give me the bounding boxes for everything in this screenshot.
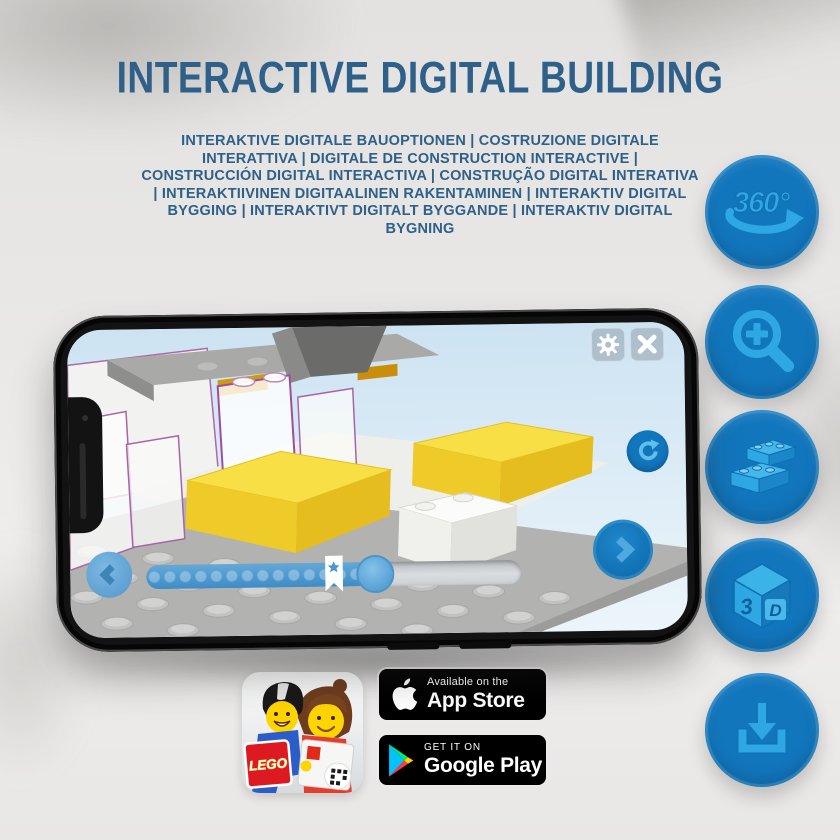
app-store-tagline: Available on the (427, 677, 525, 689)
3d-view-icon: 3 D (717, 550, 807, 640)
lego-app-icon[interactable]: LEGO (242, 672, 363, 793)
app-store-text: Available on the App Store (427, 677, 525, 713)
phone-notch (67, 397, 104, 534)
feature-zoom-button[interactable] (705, 285, 819, 399)
close-icon (637, 334, 657, 354)
refresh-icon (634, 438, 660, 464)
google-play-icon (388, 744, 415, 777)
feature-download-button[interactable] (705, 673, 819, 787)
app-store-label: App Store (427, 690, 525, 712)
settings-button[interactable] (591, 328, 625, 362)
feature-360-rotation-button[interactable]: 360° (705, 155, 819, 269)
feature-3d-view-button[interactable]: 3 D (705, 538, 819, 652)
chevron-left-icon (97, 563, 121, 587)
google-play-text: GET IT ON Google Play (424, 743, 542, 778)
speaker-slit (79, 443, 86, 519)
app-screen (67, 322, 688, 639)
zoom-in-icon (717, 297, 807, 387)
star-icon (327, 561, 340, 574)
google-play-tagline: GET IT ON (424, 743, 542, 754)
svg-text:360°: 360° (733, 187, 790, 219)
lego-brick-icon (717, 422, 807, 512)
phone-volume-button (387, 642, 439, 650)
google-play-badge[interactable]: GET IT ON Google Play (377, 733, 548, 787)
svg-text:3: 3 (739, 593, 754, 619)
front-camera (82, 415, 88, 421)
phone-volume-button (459, 641, 511, 649)
svg-text:D: D (769, 601, 781, 620)
feature-brick-button[interactable] (705, 410, 819, 524)
apple-icon (390, 678, 418, 712)
download-icon (717, 685, 807, 775)
subtitle-multilingual: INTERAKTIVE DIGITALE BAUOPTIONEN | COSTR… (140, 133, 700, 238)
gear-icon (597, 334, 619, 356)
chevron-right-icon (605, 531, 641, 567)
close-button[interactable] (630, 327, 664, 361)
promo-stage: INTERACTIVE DIGITAL BUILDING INTERAKTIVE… (0, 0, 840, 840)
phone-mockup (53, 308, 703, 653)
page-title: INTERACTIVE DIGITAL BUILDING (29, 53, 810, 103)
lego-app-artwork: LEGO (242, 672, 363, 793)
app-store-badge[interactable]: Available on the App Store (377, 667, 548, 722)
360-rotation-icon: 360° (717, 167, 807, 257)
google-play-label: Google Play (424, 755, 542, 777)
